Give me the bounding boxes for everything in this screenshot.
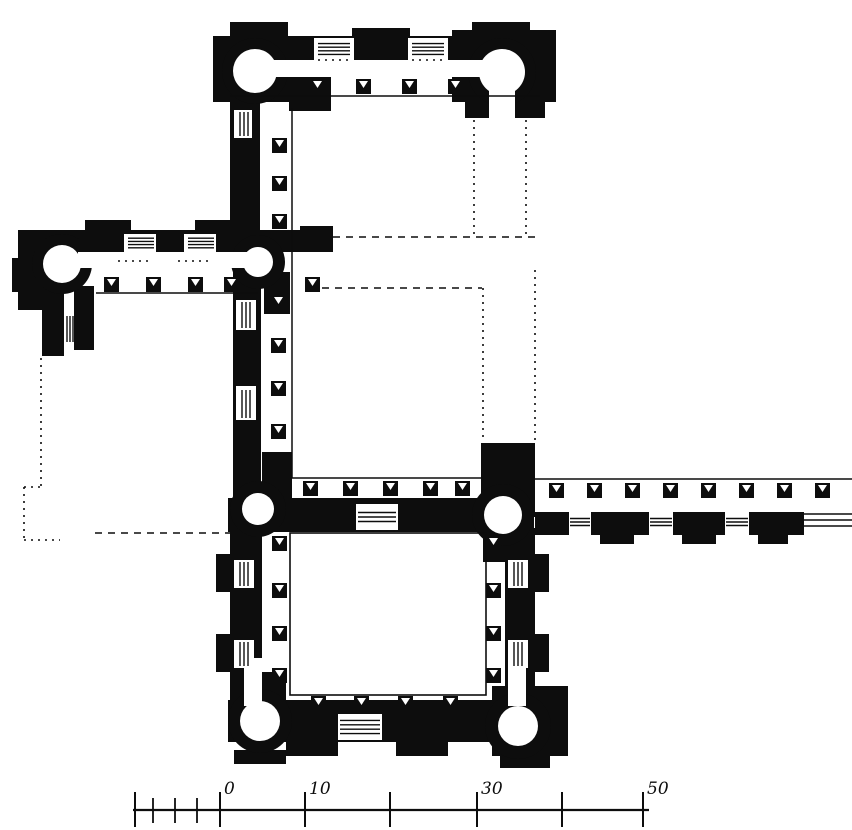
floor-plan-figure: 0103050	[0, 0, 852, 830]
courtyard-outline-layer	[290, 533, 486, 695]
arcade-pier	[423, 481, 438, 496]
arcade-pier	[303, 481, 318, 496]
scale-label-0: 0	[224, 779, 235, 799]
gallery-steps-1	[570, 519, 590, 526]
arcade-pier	[356, 79, 371, 94]
page: 0103050	[0, 0, 852, 830]
arcade-pier	[486, 536, 501, 551]
thin-lines-layer	[96, 96, 852, 526]
arcade-pier	[486, 583, 501, 598]
lower-court-east-pavilion-1	[533, 554, 549, 592]
west-wing-south-stub-b	[74, 286, 94, 350]
west-wing-pavilion-3	[300, 226, 333, 238]
arcade-pier	[739, 483, 754, 498]
lower-court-west-pavilion-2	[216, 634, 232, 672]
west-wing-end-bump	[12, 258, 24, 292]
north-wing-pavilion-center	[352, 28, 410, 42]
sw-tower-neck	[244, 658, 262, 706]
arcade-pier	[146, 277, 161, 292]
west-corridor	[78, 252, 262, 268]
round-tower-west-wing	[43, 245, 81, 283]
lower-court-west-pavilion-1	[216, 554, 232, 592]
lower-court-east-pavilion-2	[533, 634, 549, 672]
gallery-steps-3	[726, 519, 748, 526]
arcade-pier	[104, 277, 119, 292]
lower-court-south-bump-1	[286, 742, 338, 756]
arcade-pier	[224, 277, 239, 292]
lower-court-south-bump-2	[396, 742, 448, 756]
arcade-pier	[305, 277, 320, 292]
gallery-south-wall-4	[749, 512, 804, 535]
arcade-pier	[272, 214, 287, 229]
round-tower-court-se	[484, 496, 522, 534]
floor-plan-drawing: 0103050	[0, 0, 852, 830]
arcade-pier	[549, 483, 564, 498]
arcade-pier	[625, 483, 640, 498]
arcade-pier	[272, 176, 287, 191]
arcade-pier	[443, 696, 458, 711]
arcade-pier	[701, 483, 716, 498]
gallery-south-wall-2	[591, 512, 649, 535]
gallery-bump-3	[758, 535, 788, 544]
arcade-pier	[402, 79, 417, 94]
bay-west-1	[124, 234, 156, 252]
scale-bar: 0103050	[133, 779, 669, 827]
arcade-pier	[271, 424, 286, 439]
arcade-pier	[486, 668, 501, 683]
arcade-pier	[343, 481, 358, 496]
scale-label-50: 50	[647, 779, 669, 799]
window-west-stub	[67, 316, 73, 342]
arcade-pier	[354, 696, 369, 711]
arcade-pier	[272, 138, 287, 153]
arcade-pier	[663, 483, 678, 498]
round-tower-court-sw	[242, 493, 274, 525]
steps-layer	[67, 44, 748, 734]
gallery-bump-1	[600, 535, 634, 544]
arcade-pier	[271, 295, 286, 310]
arcade-pier	[272, 668, 287, 683]
arcade-pier	[271, 338, 286, 353]
round-tower-north-west	[233, 49, 277, 93]
west-wing-south-stub-a	[42, 286, 64, 356]
round-tower-south-east	[498, 706, 538, 746]
arcade-pier	[777, 483, 792, 498]
arcade-pier	[448, 79, 463, 94]
arcade-pier	[455, 481, 470, 496]
scale-label-30: 30	[481, 779, 503, 799]
north-corridor	[268, 60, 484, 77]
arcade-pier	[272, 536, 287, 551]
gallery-south-wall-3	[673, 512, 725, 535]
round-tower-north-east	[479, 49, 525, 95]
lower-courtyard-edge	[290, 533, 486, 695]
arcade-pier	[383, 481, 398, 496]
arcade-pier	[815, 483, 830, 498]
bay-west-2	[184, 234, 216, 252]
se-tower-neck	[508, 656, 526, 706]
gallery-steps-2	[650, 519, 672, 526]
west-wing-pavilion-2	[195, 220, 241, 232]
gallery-bump-2	[682, 535, 716, 544]
piers-layer	[104, 79, 830, 711]
bay-north-2	[408, 38, 448, 62]
bay-connector	[234, 110, 252, 138]
gallery-south-wall-1	[535, 512, 569, 535]
arcade-pier	[188, 277, 203, 292]
arcade-pier	[486, 626, 501, 641]
arcade-pier	[310, 79, 325, 94]
lower-south-entrance	[338, 714, 382, 740]
bay-north-1	[314, 38, 354, 62]
arcade-pier	[398, 696, 413, 711]
arcade-pier	[587, 483, 602, 498]
arcade-pier	[271, 381, 286, 396]
arcade-pier	[311, 696, 326, 711]
west-wing-pavilion-1	[85, 220, 131, 232]
round-tower-south-west	[240, 701, 280, 741]
round-tower-court-junction	[243, 247, 273, 277]
walls-layer	[12, 22, 804, 768]
arcade-pier	[272, 583, 287, 598]
scale-label-10: 10	[309, 779, 331, 799]
arcade-pier	[272, 626, 287, 641]
